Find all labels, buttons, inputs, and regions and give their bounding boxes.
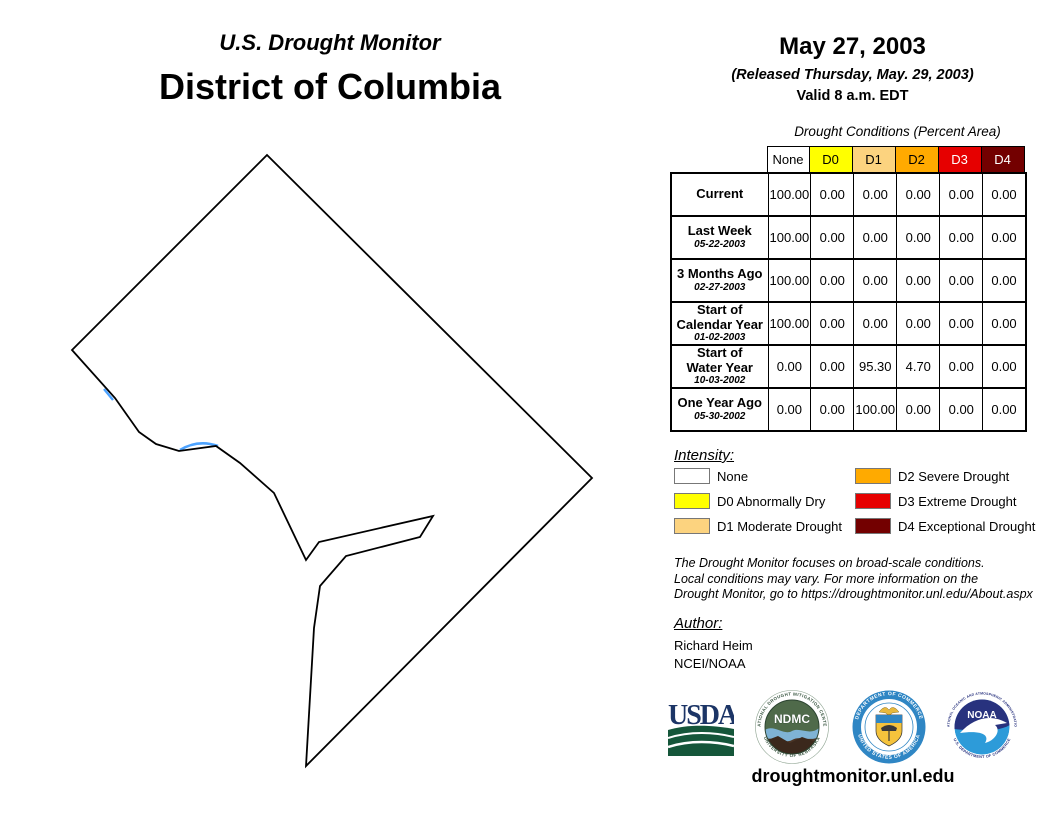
- table-row: Current 100.00 0.00 0.00 0.00 0.00 0.00: [671, 173, 1026, 216]
- noaa-wordmark: NOAA: [967, 710, 996, 721]
- legend-swatch-d0: [674, 493, 710, 509]
- row-date: 05-22-2003: [673, 239, 767, 251]
- value-cell: 0.00: [940, 216, 983, 259]
- value-cell: 0.00: [768, 388, 811, 431]
- legend-swatch-none: [674, 468, 710, 484]
- release-date: (Released Thursday, May. 29, 2003): [680, 67, 1025, 83]
- row-label: Start of Calendar Year01-02-2003: [671, 302, 768, 345]
- row-label: 3 Months Ago02-27-2003: [671, 259, 768, 302]
- table-row: Start of Water Year10-03-2002 0.00 0.00 …: [671, 345, 1026, 388]
- program-title: U.S. Drought Monitor: [60, 30, 600, 56]
- value-cell: 0.00: [768, 345, 811, 388]
- value-cell: 0.00: [854, 259, 897, 302]
- legend-swatch-d2: [855, 468, 891, 484]
- value-cell: 0.00: [983, 345, 1026, 388]
- value-cell: 0.00: [940, 388, 983, 431]
- row-label: One Year Ago05-30-2002: [671, 388, 768, 431]
- legend-label: D4 Exceptional Drought: [898, 519, 1035, 534]
- row-label: Current: [671, 173, 768, 216]
- row-date: 10-03-2002: [673, 375, 767, 387]
- legend-label: D1 Moderate Drought: [717, 519, 842, 534]
- legend-column-left: None D0 Abnormally Dry D1 Moderate Droug…: [674, 469, 842, 544]
- legend-item: D1 Moderate Drought: [674, 519, 842, 533]
- usda-logo: USDA: [668, 698, 734, 756]
- row-date: 01-02-2003: [673, 332, 767, 344]
- value-cell: 0.00: [811, 345, 854, 388]
- row-label-text: Last Week: [688, 223, 752, 238]
- author-title: Author:: [674, 615, 722, 632]
- row-date: 05-30-2002: [673, 411, 767, 423]
- value-cell: 0.00: [897, 302, 940, 345]
- ndmc-logo: NATIONAL DROUGHT MITIGATION CENTER UNIVE…: [755, 690, 829, 764]
- value-cell: 0.00: [854, 302, 897, 345]
- row-label-text: Start of Calendar Year: [677, 302, 763, 332]
- value-cell: 100.00: [768, 302, 811, 345]
- legend-label: D2 Severe Drought: [898, 469, 1009, 484]
- value-cell: 0.00: [854, 173, 897, 216]
- value-cell: 4.70: [897, 345, 940, 388]
- value-cell: 0.00: [940, 302, 983, 345]
- region-title: District of Columbia: [60, 66, 600, 108]
- map-date: May 27, 2003: [680, 33, 1025, 61]
- legend-label: None: [717, 469, 748, 484]
- col-header-d2: D2: [895, 147, 938, 173]
- legend-title: Intensity:: [674, 447, 734, 464]
- dc-boundary-outline: [72, 155, 592, 766]
- drought-table-header: None D0 D1 D2 D3 D4: [670, 146, 1025, 173]
- commerce-seal-logo: DEPARTMENT OF COMMERCE UNITED STATES OF …: [852, 690, 926, 764]
- table-row: Last Week05-22-2003 100.00 0.00 0.00 0.0…: [671, 216, 1026, 259]
- disclaimer-text: The Drought Monitor focuses on broad-sca…: [674, 556, 1044, 603]
- drought-table: Current 100.00 0.00 0.00 0.00 0.00 0.00 …: [670, 172, 1027, 432]
- row-label-text: Current: [696, 186, 743, 201]
- legend-label: D0 Abnormally Dry: [717, 494, 825, 509]
- date-block: May 27, 2003 (Released Thursday, May. 29…: [680, 33, 1025, 104]
- valid-time: Valid 8 a.m. EDT: [680, 88, 1025, 104]
- value-cell: 0.00: [811, 216, 854, 259]
- row-date: 02-27-2003: [673, 282, 767, 294]
- legend-column-right: D2 Severe Drought D3 Extreme Drought D4 …: [855, 469, 1035, 544]
- header-spacer: [670, 147, 767, 173]
- value-cell: 0.00: [940, 345, 983, 388]
- author-org: NCEI/NOAA: [674, 656, 746, 671]
- dc-boundary-map: [40, 140, 620, 790]
- value-cell: 0.00: [983, 173, 1026, 216]
- ndmc-wordmark: NDMC: [774, 712, 810, 726]
- row-label: Start of Water Year10-03-2002: [671, 345, 768, 388]
- table-row: Start of Calendar Year01-02-2003 100.00 …: [671, 302, 1026, 345]
- value-cell: 0.00: [811, 302, 854, 345]
- table-caption: Drought Conditions (Percent Area): [767, 124, 1028, 139]
- col-header-d0: D0: [809, 147, 852, 173]
- legend-swatch-d1: [674, 518, 710, 534]
- value-cell: 0.00: [983, 302, 1026, 345]
- col-header-d4: D4: [981, 147, 1024, 173]
- table-row: 3 Months Ago02-27-2003 100.00 0.00 0.00 …: [671, 259, 1026, 302]
- value-cell: 0.00: [940, 259, 983, 302]
- value-cell: 100.00: [768, 173, 811, 216]
- author-name: Richard Heim: [674, 638, 753, 653]
- drought-monitor-report: U.S. Drought Monitor District of Columbi…: [0, 0, 1056, 816]
- value-cell: 0.00: [854, 216, 897, 259]
- value-cell: 95.30: [854, 345, 897, 388]
- value-cell: 0.00: [940, 173, 983, 216]
- value-cell: 0.00: [983, 259, 1026, 302]
- row-label-text: 3 Months Ago: [677, 266, 762, 281]
- value-cell: 0.00: [983, 388, 1026, 431]
- value-cell: 0.00: [811, 259, 854, 302]
- row-label-text: Start of Water Year: [687, 345, 754, 375]
- legend-label: D3 Extreme Drought: [898, 494, 1017, 509]
- legend-swatch-d3: [855, 493, 891, 509]
- legend-item: D3 Extreme Drought: [855, 494, 1035, 508]
- legend-item: D0 Abnormally Dry: [674, 494, 842, 508]
- row-label-text: One Year Ago: [677, 395, 762, 410]
- value-cell: 0.00: [897, 388, 940, 431]
- legend-swatch-d4: [855, 518, 891, 534]
- value-cell: 0.00: [811, 388, 854, 431]
- row-label: Last Week05-22-2003: [671, 216, 768, 259]
- legend-item: D4 Exceptional Drought: [855, 519, 1035, 533]
- value-cell: 0.00: [983, 216, 1026, 259]
- value-cell: 0.00: [811, 173, 854, 216]
- legend-item: D2 Severe Drought: [855, 469, 1035, 483]
- value-cell: 100.00: [854, 388, 897, 431]
- table-row: One Year Ago05-30-2002 0.00 0.00 100.00 …: [671, 388, 1026, 431]
- value-cell: 0.00: [897, 173, 940, 216]
- legend-item: None: [674, 469, 842, 483]
- value-cell: 0.00: [897, 259, 940, 302]
- col-header-d3: D3: [938, 147, 981, 173]
- footer-url[interactable]: droughtmonitor.unl.edu: [688, 766, 1018, 787]
- value-cell: 100.00: [768, 259, 811, 302]
- noaa-logo: NATIONAL OCEANIC AND ATMOSPHERIC ADMINIS…: [945, 690, 1019, 764]
- col-header-d1: D1: [852, 147, 895, 173]
- col-header-none: None: [767, 147, 809, 173]
- value-cell: 0.00: [897, 216, 940, 259]
- value-cell: 100.00: [768, 216, 811, 259]
